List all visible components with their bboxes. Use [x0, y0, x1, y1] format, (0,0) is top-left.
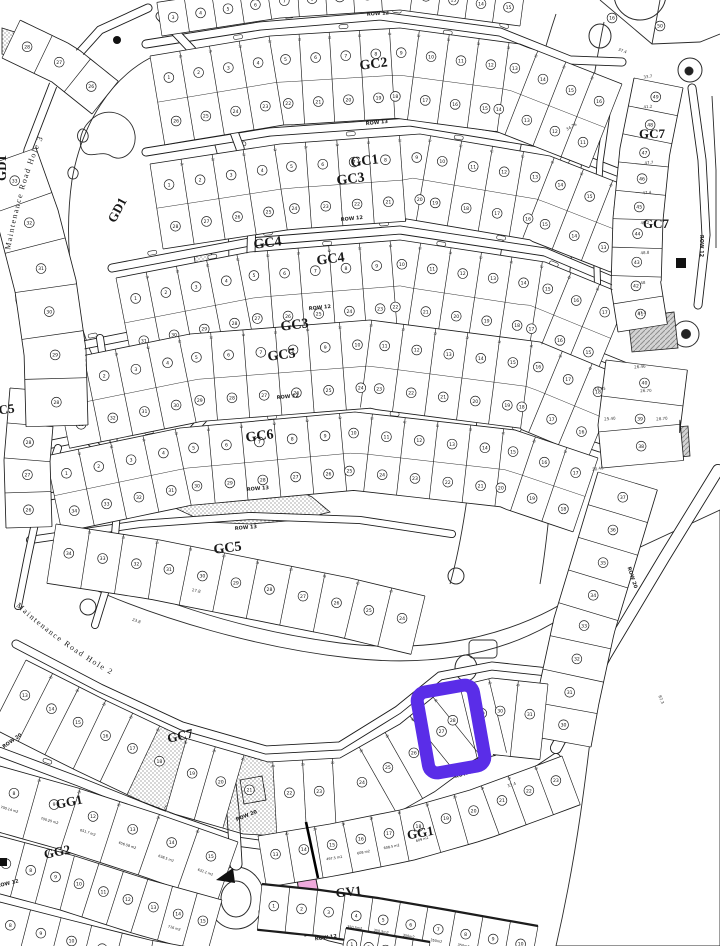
dimension-label: 47.4 [642, 190, 652, 196]
dimension-label: 41.2 [643, 104, 653, 110]
lot-number: 14 [557, 183, 563, 189]
lot-number: 13 [273, 852, 279, 858]
lot-number: 27 [439, 729, 445, 735]
lot-number: 5 [192, 446, 195, 452]
lot-number: 24 [233, 109, 239, 115]
lot-number: 7 [437, 927, 440, 933]
lot-width-tick: 12 [358, 246, 362, 250]
lot-number: 23 [377, 306, 383, 312]
lot-number: 6 [314, 55, 317, 61]
roundabout-center-dot [682, 330, 691, 339]
lot-number: 30 [199, 574, 205, 580]
lot-number: 19 [376, 96, 382, 102]
road-label: ROW 12 [698, 235, 704, 258]
lot-number: 36 [610, 528, 616, 534]
lot-number: 28 [450, 718, 456, 724]
lot-number: 27 [254, 316, 260, 322]
lot-number: 12 [552, 129, 558, 135]
lot-number: 23 [412, 476, 418, 482]
lot-width-tick: 20 [271, 764, 275, 768]
lot-number: 17 [130, 746, 136, 752]
lot-number: 12 [414, 348, 420, 354]
lot-number: 34 [590, 593, 596, 599]
lot-number: 17 [386, 831, 392, 837]
lot-number: 11 [470, 164, 476, 170]
lot-number: 12 [488, 62, 494, 68]
lot-number: 21 [385, 199, 391, 205]
lot-number: 13 [512, 66, 518, 72]
lot-number: 18 [463, 206, 469, 212]
lot-number: 10 [69, 939, 75, 945]
driveway-apron [323, 241, 332, 246]
lot-number: 25 [346, 469, 352, 475]
lot-number: 27 [261, 393, 267, 399]
lot-number: 16 [103, 733, 109, 739]
lot-number: 27 [56, 60, 62, 66]
lot-number: 4 [261, 168, 264, 174]
lot-number: 9 [415, 155, 418, 161]
lot-number: 17 [549, 417, 555, 423]
lot-number: 5 [227, 6, 230, 12]
lot-width-tick: 12 [338, 416, 342, 420]
lot-number: 42 [633, 284, 639, 290]
lot-number: 21 [423, 309, 429, 315]
lot-number: 5 [382, 918, 385, 924]
lot-number: 29 [233, 580, 239, 586]
lot-number: 8 [384, 157, 387, 163]
lot-number: 40 [642, 381, 648, 387]
lot-number: 25 [203, 114, 209, 120]
lot[interactable] [368, 135, 405, 223]
lot-number: 10 [428, 54, 434, 60]
block-label: GC7 [643, 216, 670, 231]
lot-number: 14 [482, 446, 488, 452]
lot-number: 39 [637, 417, 643, 423]
lot-number: 19 [529, 496, 535, 502]
lot-number: 15 [587, 194, 593, 200]
lot-number: 8 [464, 932, 467, 938]
lot-number: 15 [568, 88, 574, 94]
lot-width-tick: 12 [388, 32, 392, 36]
lot-number: 15 [208, 854, 214, 860]
lot-number: 27 [300, 594, 306, 600]
lot-number: 32 [136, 495, 142, 501]
lot-number: 17 [494, 211, 500, 217]
lot-number: 21 [478, 483, 484, 489]
lot-number: 9 [39, 931, 42, 937]
lot-number: 33 [581, 623, 587, 629]
lot-number: 9 [375, 263, 378, 269]
lot-number: 29 [227, 481, 233, 487]
lot-width-tick: 12 [209, 335, 213, 339]
lot-number: 23 [376, 386, 382, 392]
lot-number: 24 [292, 206, 298, 212]
lot-number: 8 [311, 0, 314, 3]
lot-number: 14 [478, 356, 484, 362]
lot-number: 32 [133, 561, 139, 567]
lot-number: 33 [100, 556, 106, 562]
lot-number: 4 [257, 60, 260, 66]
lot-number: 7 [259, 350, 262, 356]
lot-number: 23 [323, 204, 329, 210]
lot-number: 37 [620, 495, 626, 501]
lot-number: 33 [104, 502, 110, 508]
lot-number: 21 [499, 798, 505, 804]
lot-number: 19 [432, 201, 438, 207]
lot-number: 6 [225, 443, 228, 449]
lot-width-tick: 12 [338, 325, 342, 329]
lot-number: 14 [301, 847, 307, 853]
driveway-apron [346, 131, 355, 136]
lot-number: 12 [90, 814, 96, 820]
lot-number: 25 [326, 388, 332, 394]
lot-width-tick: 12 [398, 138, 402, 142]
lot-number: 15 [510, 449, 516, 455]
lot-number: 28 [232, 321, 238, 327]
lot-width-tick: 12 [403, 420, 407, 424]
lot-number: 4 [225, 279, 228, 285]
lot-number: 18 [392, 94, 398, 100]
lot-number: 4 [199, 11, 202, 17]
lot-number: 43 [634, 260, 640, 266]
lot-number: 28 [24, 44, 30, 50]
lot[interactable] [329, 31, 365, 123]
lot-number: 6 [227, 353, 230, 359]
lot-width-tick: 12 [241, 333, 245, 337]
lot-number: 18 [560, 507, 566, 513]
lot-number: 9 [324, 345, 327, 351]
lot-number: 19 [504, 403, 510, 409]
lot-number: 33 [12, 178, 18, 184]
lot-number: 27 [204, 219, 210, 225]
lot-number: 27 [293, 475, 299, 481]
lot-number: 19 [484, 318, 490, 324]
lot-number: 14 [496, 107, 502, 113]
lot-number: 24 [359, 780, 365, 786]
lot-number: 1 [350, 942, 353, 946]
lot-width-tick: 12 [298, 37, 302, 41]
lot-number: 46 [639, 176, 645, 182]
lot-number: 15 [200, 919, 206, 925]
lot-width-tick: 12 [239, 425, 243, 429]
lot-number: 3 [230, 173, 233, 179]
lot-width-tick: 12 [272, 422, 276, 426]
lot-number: 16 [541, 460, 547, 466]
lot-number: 20 [453, 314, 459, 320]
lot-number: 14 [540, 77, 546, 83]
lot-number: 16 [609, 16, 615, 22]
dimension-label: 47.3 [637, 310, 647, 316]
lot-number: 28 [267, 587, 273, 593]
lot-number: 10 [76, 881, 82, 887]
lot-number: 30 [194, 484, 200, 490]
lot-number: 13 [22, 693, 28, 699]
lot-number: 11 [101, 889, 107, 895]
lot-number: 3 [134, 367, 137, 373]
lot-number: 16 [452, 102, 458, 108]
lot-number: 31 [168, 488, 174, 494]
lot-number: 30 [561, 722, 567, 728]
lot-number: 2 [164, 290, 167, 296]
lot-number: 25 [385, 765, 391, 771]
lot-number: 21 [440, 395, 446, 401]
lot-number: 23 [262, 104, 268, 110]
lot-number: 1 [272, 904, 275, 910]
lot-number: 34 [71, 508, 77, 514]
lot-number: 8 [9, 923, 12, 929]
lot-number: 32 [574, 657, 580, 663]
lot-number: 11 [458, 58, 464, 64]
driveway-apron [339, 24, 348, 29]
lot-number: 7 [283, 0, 286, 4]
lot-number: 16 [579, 429, 585, 435]
lot-number: 31 [166, 567, 172, 573]
plat-map: 3456789101112131415123456789101112131415… [0, 0, 720, 946]
lot-number: 31 [567, 690, 573, 696]
lot-number: 24 [379, 472, 385, 478]
lot-number: 15 [329, 842, 335, 848]
lot-number: 13 [446, 352, 452, 358]
lot-number: 8 [291, 437, 294, 443]
lot-number: 5 [195, 355, 198, 361]
lot-number: 9 [324, 434, 327, 440]
lot-number: 16 [557, 338, 563, 344]
lot-number: 47 [642, 150, 648, 156]
lot-number: 16 [573, 298, 579, 304]
lot-number: 24 [399, 616, 405, 622]
lot-number: 7 [344, 53, 347, 59]
lot-number: 28 [26, 440, 32, 446]
lot-number: 20 [471, 808, 477, 814]
lot-number: 14 [478, 1, 484, 7]
lot-number: 30 [46, 309, 52, 315]
dimension-label: 26.70 [640, 388, 652, 394]
lot-number: 45 [636, 205, 642, 211]
lot-number: 13 [490, 276, 496, 282]
lot-width-tick: 12 [266, 254, 270, 258]
lot-number: 29 [201, 327, 207, 333]
lot-number: 49 [653, 95, 659, 101]
lot-width-tick: 20 [516, 683, 520, 687]
lot-number: 20 [218, 779, 224, 785]
lot-number: 12 [125, 897, 131, 903]
road-end-dot [113, 36, 121, 44]
lot-number: 10 [518, 942, 524, 946]
lot-number: 15 [510, 360, 516, 366]
lot-number: 13 [449, 442, 455, 448]
lot-number: 11 [382, 344, 388, 350]
lot-number: 28 [173, 224, 179, 230]
block-label: GC7 [639, 126, 666, 141]
lot-number: 26 [26, 507, 32, 513]
lot-width-tick: 12 [370, 416, 374, 420]
lot-number: 2 [197, 70, 200, 76]
lot-number: 7 [314, 268, 317, 274]
lot-number: 15 [75, 720, 81, 726]
lot-number: 13 [601, 245, 607, 251]
lot-number: 18 [519, 405, 525, 411]
lot-number: 14 [169, 840, 175, 846]
lot-number: 20 [346, 97, 352, 103]
lot-number: 13 [532, 175, 538, 181]
lot-number: 12 [416, 438, 422, 444]
lot-number: 3 [195, 284, 198, 290]
lot-number: 31 [142, 409, 148, 415]
lot-number: 30 [497, 709, 503, 715]
block-label: GV1 [335, 883, 362, 901]
lot-number: 3 [227, 65, 230, 71]
lot-number: 13 [524, 118, 530, 124]
lot-number: 28 [229, 396, 235, 402]
lot-number: 22 [392, 305, 398, 311]
lot-number: 32 [26, 220, 32, 226]
lot-number: 13 [150, 905, 156, 911]
lot-number: 19 [443, 816, 449, 822]
lot-width-tick: 12 [436, 424, 440, 428]
lot-number: 2 [300, 907, 303, 913]
lot-number: 5 [284, 57, 287, 63]
lot-number: 10 [355, 343, 361, 349]
lot-number: 8 [29, 868, 32, 874]
lot-number: 17 [422, 98, 428, 104]
lot-number: 4 [355, 914, 358, 920]
lot-number: 15 [542, 222, 548, 228]
lot[interactable] [273, 760, 307, 838]
lot-width-tick: 12 [328, 36, 332, 40]
lot-number: 15 [482, 106, 488, 112]
lot-number: 6 [283, 271, 286, 277]
lot-number: 15 [585, 350, 591, 356]
lot-number: 11 [580, 140, 586, 146]
lot[interactable] [359, 29, 395, 121]
lot-number: 29 [52, 353, 58, 359]
screenshot-root: 3456789101112131415123456789101112131415… [0, 0, 720, 946]
lot-number: 8 [12, 791, 15, 797]
lot-number: 5 [290, 164, 293, 170]
lot-number: 26 [334, 601, 340, 607]
lot-number: 22 [445, 480, 451, 486]
dimension-label: 14.05 [594, 386, 606, 392]
lot-number: 13 [130, 827, 136, 833]
lot-number: 1 [65, 471, 68, 477]
lot-number: 11 [429, 267, 435, 273]
lot-number: 9 [338, 0, 341, 1]
lot-number: 24 [358, 385, 364, 391]
lot-number: 6 [409, 922, 412, 928]
lot-number: 44 [635, 231, 641, 237]
lot-number: 11 [384, 434, 390, 440]
lot-number: 1 [167, 75, 170, 81]
lot-number: 4 [166, 361, 169, 367]
lot-number: 28 [260, 478, 266, 484]
lot-number: 25 [266, 210, 272, 216]
lot-number: 23 [316, 789, 322, 795]
lot-number: 9 [400, 50, 403, 56]
lot-number: 32 [110, 416, 116, 422]
block-label: GD1 [0, 155, 9, 181]
lot-number: 14 [521, 280, 527, 286]
lot-width-tick: 12 [389, 244, 393, 248]
lot-width-tick: 12 [335, 143, 339, 147]
lot-width-tick: 12 [367, 141, 371, 145]
lot-width-tick: 12 [305, 419, 309, 423]
black-marker [0, 858, 7, 866]
lot[interactable] [299, 32, 335, 124]
lot-width-tick: 12 [297, 251, 301, 255]
lot-number: 50 [657, 24, 663, 30]
lot-number: 4 [162, 451, 165, 457]
lot-number: 6 [321, 162, 324, 168]
lot-number: 21 [246, 788, 252, 794]
lot-number: 13 [451, 0, 457, 4]
lot-number: 12 [460, 271, 466, 277]
lot-width-tick: 12 [207, 428, 211, 432]
lot-number: 24 [346, 309, 352, 315]
lot-number: 15 [545, 287, 551, 293]
lot-width-tick: 12 [304, 145, 308, 149]
dimension-label: 48 [640, 280, 646, 285]
lot-number: 10 [439, 159, 445, 165]
lot-number: 35 [600, 560, 606, 566]
lot-width-tick: 12 [501, 431, 505, 435]
lot-number: 16 [596, 99, 602, 105]
black-marker [676, 258, 686, 268]
lot-number: 18 [514, 323, 520, 329]
lot-number: 20 [498, 485, 504, 491]
roundabout-center-dot [685, 67, 693, 75]
lot-number: 19 [189, 771, 195, 777]
lot-number: 21 [315, 99, 321, 105]
lot-width-tick: 12 [468, 427, 472, 431]
lot-number: 17 [573, 470, 579, 476]
lot-number: 3 [172, 15, 175, 21]
lot-number: 2 [199, 177, 202, 183]
lot-number: 25 [366, 608, 372, 614]
lot-number: 2 [97, 464, 100, 470]
lot-number: 31 [527, 712, 533, 718]
lot-number: 30 [173, 403, 179, 409]
lot-number: 23 [553, 778, 559, 784]
lot-number: 27 [25, 472, 31, 478]
lot-number: 3 [130, 457, 133, 463]
lot-number: 9 [54, 875, 57, 881]
lot-number: 16 [525, 216, 531, 222]
lot-number: 26 [173, 119, 179, 125]
lot-number: 10 [351, 431, 357, 437]
lot-number: 26 [235, 214, 241, 220]
lot-number: 10 [399, 262, 405, 268]
lot-number: 22 [286, 790, 292, 796]
dimension-label: 48.8 [640, 250, 650, 256]
lot-number: 17 [529, 326, 535, 332]
dimension-label: 25.40 [604, 415, 616, 421]
lot-number: 2 [103, 373, 106, 379]
lot-number: 14 [49, 706, 55, 712]
lot-number: 26 [88, 84, 94, 90]
dimension-label: 26.46 [634, 363, 646, 369]
lot-number: 29 [197, 398, 203, 404]
lot-number: 16 [535, 365, 541, 371]
lot-number: 8 [345, 266, 348, 272]
lot-number: 14 [175, 912, 181, 918]
lot-number: 34 [66, 551, 72, 557]
lot-number: 22 [285, 101, 291, 107]
lot-number: 38 [638, 444, 644, 450]
lot-number: 26 [411, 751, 417, 757]
lot-number: 1 [168, 182, 171, 188]
lot-number: 25 [316, 311, 322, 317]
lot-number: 3 [327, 910, 330, 916]
